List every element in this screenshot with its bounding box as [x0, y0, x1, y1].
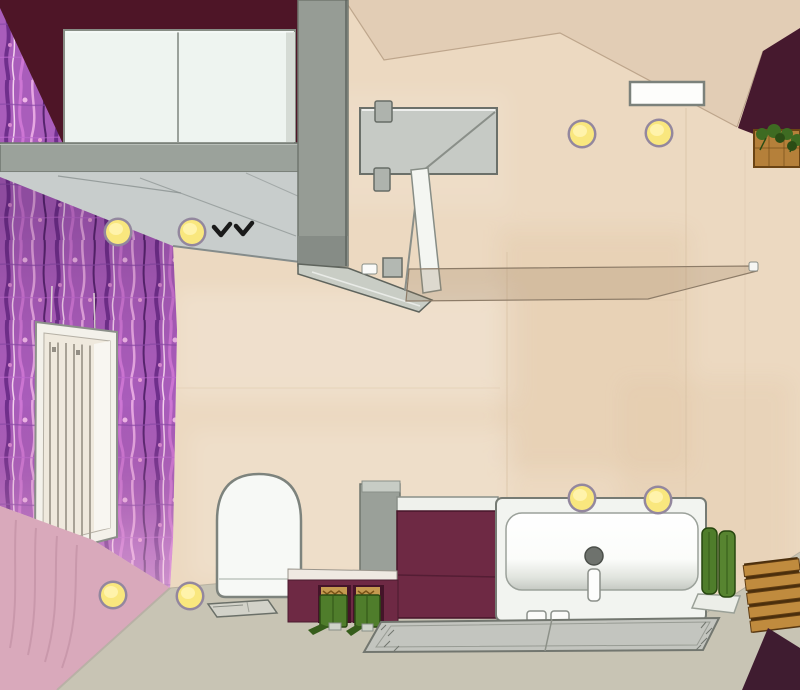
- drain: [585, 547, 603, 565]
- vanity-front: [397, 511, 498, 618]
- ceiling-spotlight: [644, 486, 673, 515]
- shower-handle: [362, 264, 377, 274]
- vanity-counter-edge: [397, 497, 498, 512]
- bathroom-plan-view: [0, 0, 800, 690]
- cabinet-side-shadow: [286, 32, 295, 142]
- vanity-gray-box: [360, 484, 400, 577]
- shower-bracket-bottom: [374, 168, 390, 191]
- shower-bracket-top: [375, 101, 392, 122]
- ceiling-spotlight: [99, 581, 128, 610]
- wall-cabinet: [64, 30, 295, 144]
- tub-fitting: [588, 569, 600, 601]
- wall-beam: [0, 143, 306, 172]
- shower-control-box: [383, 258, 402, 277]
- ceiling-spotlight: [176, 582, 205, 611]
- wooden-stool: [743, 557, 800, 633]
- ceiling-spotlight: [568, 120, 597, 149]
- bathroom-scene: [0, 0, 800, 690]
- wall-vent: [630, 82, 704, 105]
- plant-crate: [754, 124, 800, 167]
- canopy-spotlight: [104, 218, 133, 247]
- canopy-spotlight: [178, 218, 207, 247]
- bath-mat: [364, 618, 719, 652]
- bathtub: [496, 498, 706, 622]
- ceiling-spotlight: [645, 119, 674, 148]
- partition-end-cap: [749, 262, 758, 271]
- ceiling-spotlight: [568, 484, 597, 513]
